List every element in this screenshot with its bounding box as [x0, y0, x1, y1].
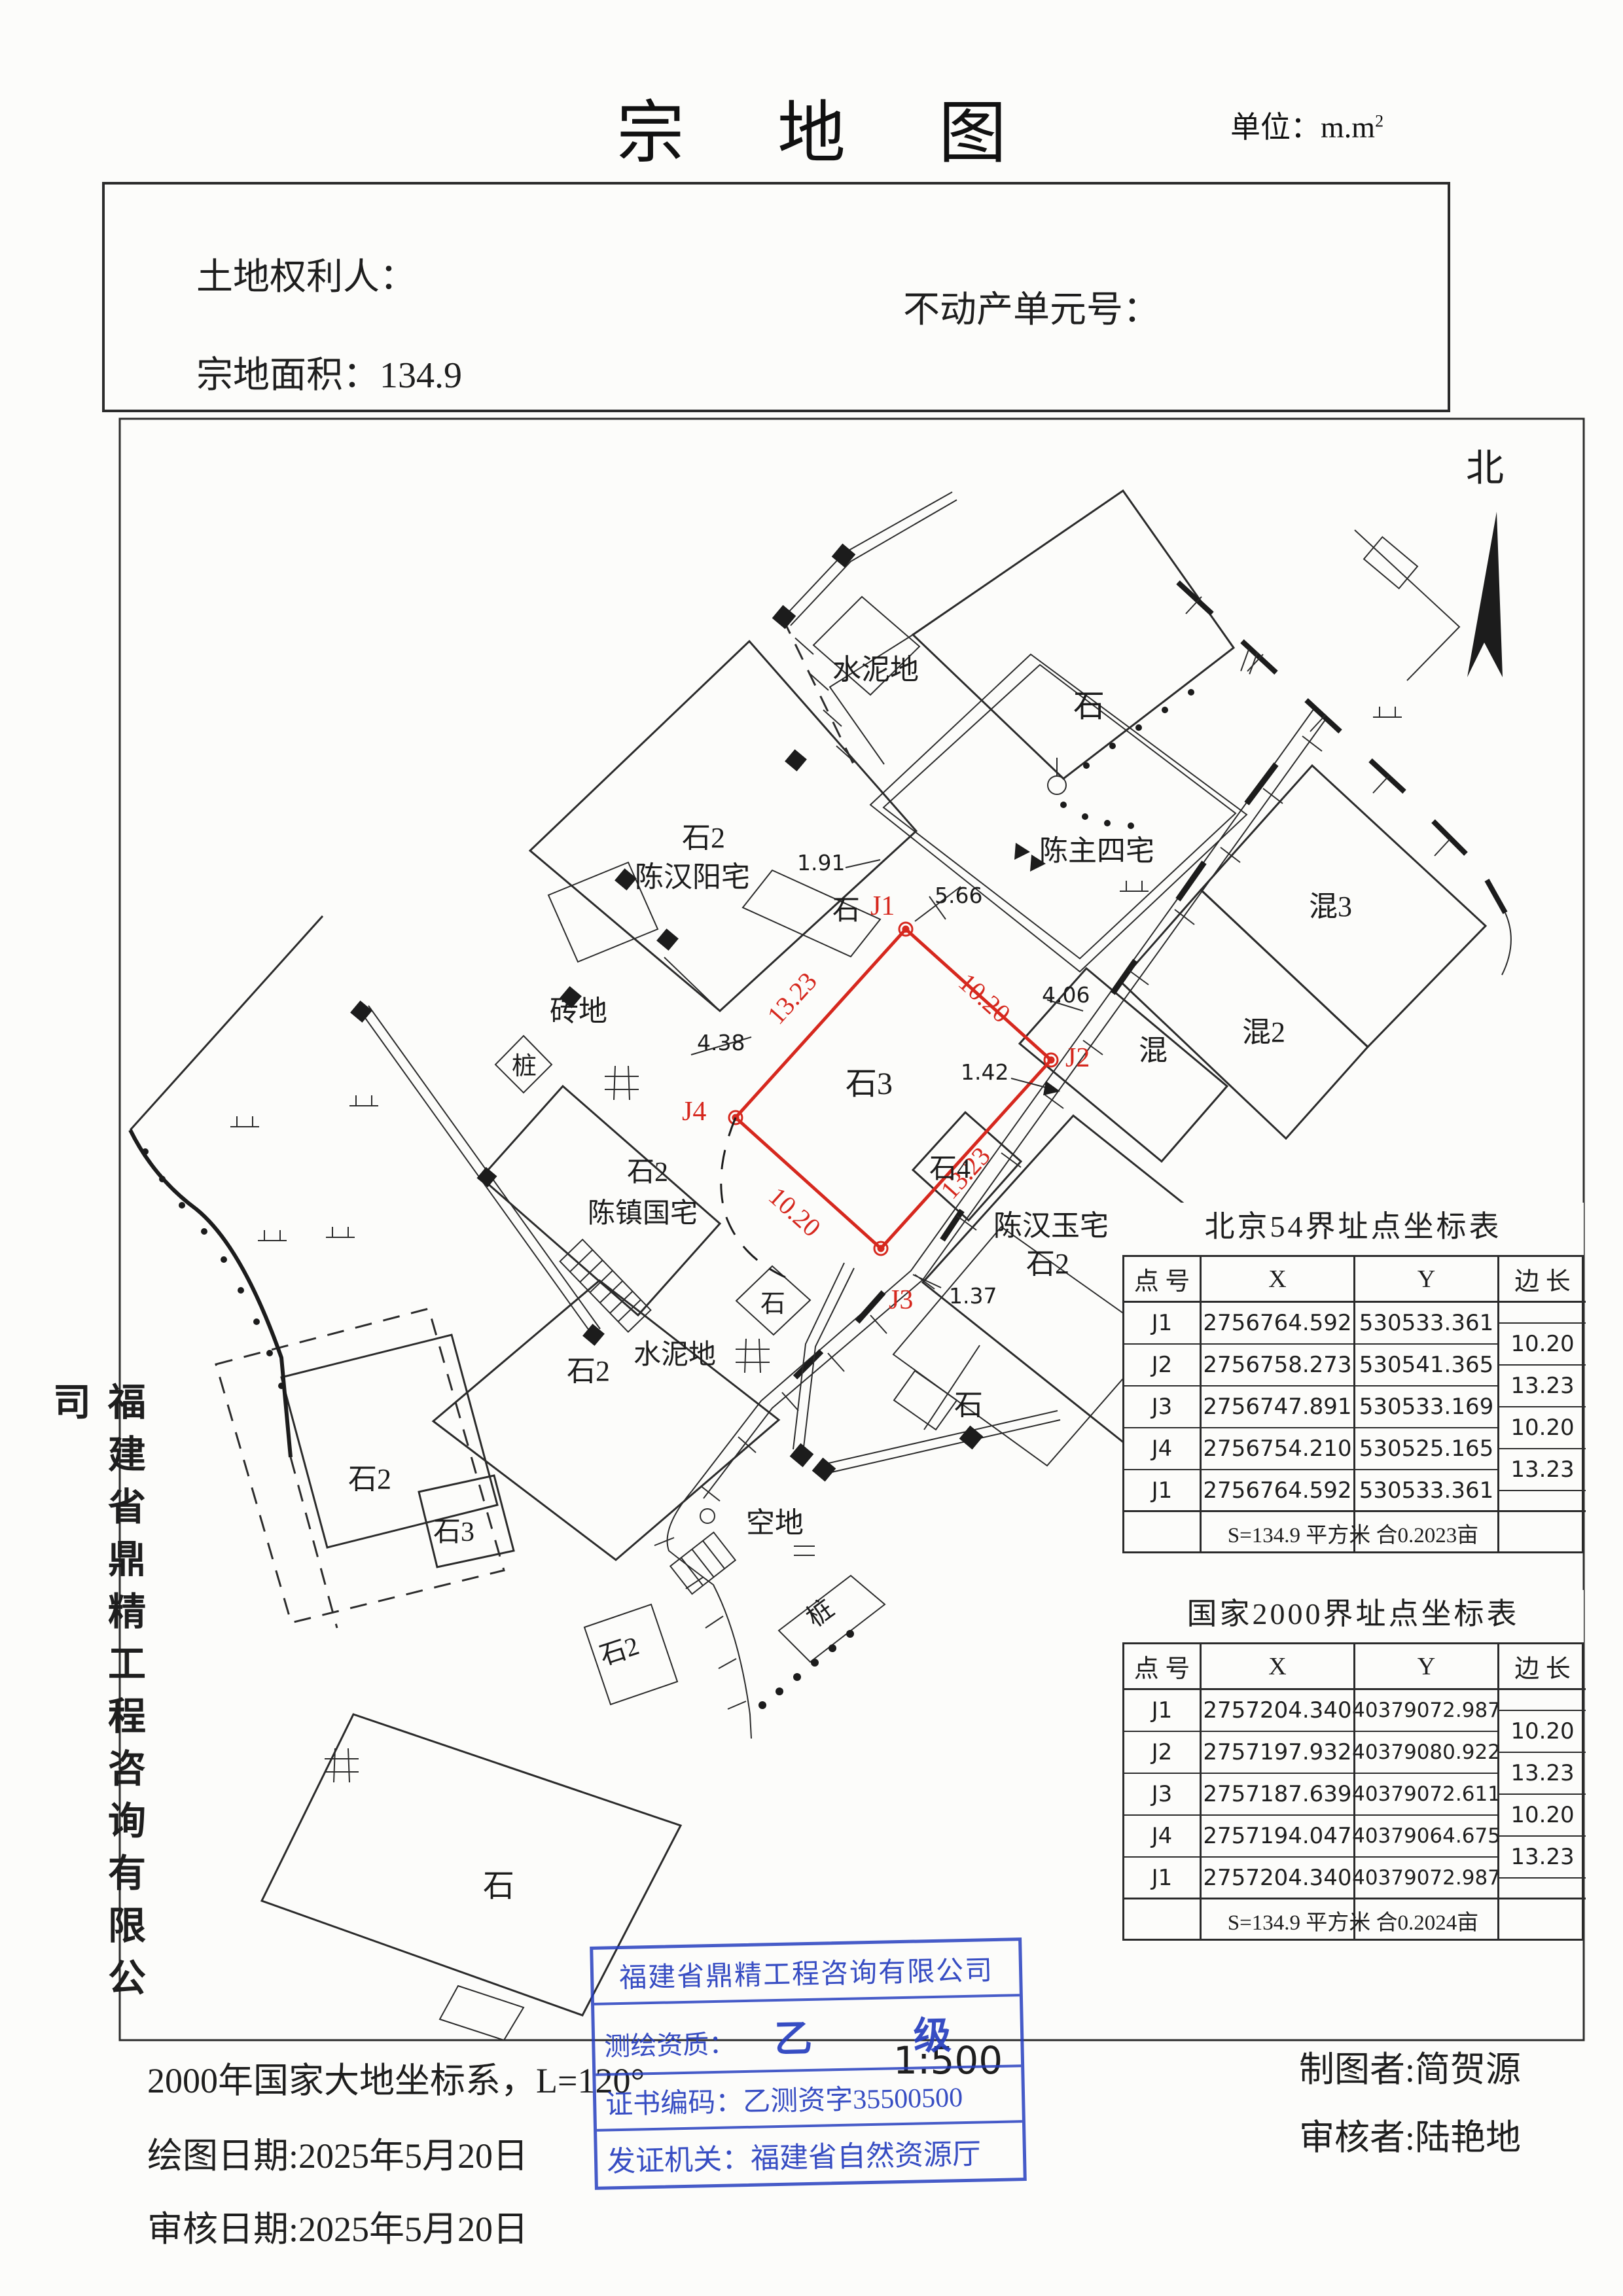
label-4-38: 4.38 [697, 1030, 745, 1055]
label-1-42: 1.42 [961, 1059, 1008, 1085]
label-zhuandi: 砖地 [550, 995, 607, 1027]
stamp-qualification: 测绘资质：乙 级 [594, 1996, 1021, 2076]
label-shi3-parcel: 石3 [846, 1067, 893, 1101]
col-header-x: X [1202, 1644, 1353, 1690]
table-title-cgcs2000: 国家2000界址点坐标表 [1122, 1590, 1584, 1633]
reviewer: 审核者:陆艳地 [1299, 2108, 1521, 2160]
label-shi2-a: 石2 [682, 822, 725, 854]
label-1-91: 1.91 [797, 850, 845, 875]
cell-x: 2757187.639 [1202, 1774, 1353, 1816]
label-4-06: 4.06 [1042, 982, 1090, 1008]
cell-edge: 10.20 [1499, 1407, 1586, 1449]
table-title-bj54: 北京54界址点坐标表 [1122, 1203, 1584, 1246]
coordinate-table-cgcs2000: 国家2000界址点坐标表 点 号 J1 J2 J3 J4 J1 X 275720… [1122, 1590, 1584, 1941]
label-shi-f: 石 [954, 1389, 983, 1421]
cell-point: J1 [1124, 1470, 1200, 1512]
label-shi-e: 石 [760, 1290, 785, 1318]
cell-edge: 13.23 [1499, 1449, 1586, 1491]
parcel-point-j3: J3 [889, 1285, 913, 1315]
cell-point: J3 [1124, 1386, 1200, 1428]
col-header-x: X [1202, 1257, 1353, 1303]
cell-x: 2757197.932 [1202, 1732, 1353, 1774]
label-shi2-b: 石2 [627, 1157, 668, 1188]
parcel-map-document: 宗 地 图 单位：m.m2 土地权利人： 不动产单元号： 宗地面积：134.9 … [0, 0, 1623, 2296]
stamp-qual-label: 测绘资质： [604, 2029, 736, 2061]
cell-x: 2756754.210 [1202, 1428, 1353, 1470]
label-hun: 混 [1139, 1034, 1168, 1067]
label-shi-strip: 石 [832, 896, 860, 926]
cell-point: J2 [1124, 1345, 1200, 1386]
cell-edge: 13.23 [1499, 1366, 1586, 1407]
drafter: 制图者:简贺源 [1299, 2040, 1521, 2092]
stamp-qual-value: 乙 级 [774, 2013, 998, 2060]
table-summary-bj54: S=134.9 平方米 合0.2023亩 [1124, 1514, 1582, 1551]
cell-x: 2757194.047 [1202, 1816, 1353, 1858]
cell-point: J4 [1124, 1428, 1200, 1470]
label-shi2-yu: 石2 [1026, 1248, 1069, 1280]
cell-y: 40379064.675 [1355, 1816, 1497, 1858]
label-shi2-e: 石2 [348, 1463, 391, 1495]
cell-y: 530533.361 [1355, 1470, 1497, 1512]
north-arrow-icon: 北 [1466, 447, 1504, 677]
cell-y: 530533.169 [1355, 1386, 1497, 1428]
cell-y: 40379072.987 [1355, 1858, 1497, 1899]
label-chenzhusizhai: 陈主四宅 [1039, 835, 1154, 867]
cell-point: J3 [1124, 1774, 1200, 1816]
cell-edge: 10.20 [1499, 1324, 1586, 1366]
north-label: 北 [1466, 447, 1504, 489]
col-header-y: Y [1355, 1257, 1497, 1303]
cell-y: 530525.165 [1355, 1428, 1497, 1470]
cell-edge: 10.20 [1499, 1795, 1586, 1837]
parcel-point-j2: J2 [1065, 1043, 1090, 1073]
cell-x: 2757204.340 [1202, 1690, 1353, 1732]
cell-x: 2756764.592 [1202, 1470, 1353, 1512]
label-shi-top: 石 [1073, 689, 1105, 724]
label-shi4: 石4 [929, 1154, 971, 1184]
stamp-issuer: 发证机关：福建省自然资源厅 [597, 2123, 1024, 2187]
label-shi3-b: 石3 [433, 1517, 474, 1547]
col-header-point: 点 号 [1124, 1644, 1200, 1690]
company-name-vertical: 福建省鼎精工程咨询有限公司 [41, 1382, 151, 2043]
col-header-edge: 边 长 [1499, 1257, 1586, 1303]
cell-edge: 10.20 [1499, 1711, 1586, 1753]
stamp-cert-code: 证书编码：乙测资字35500500 [596, 2067, 1022, 2132]
certification-stamp: 福建省鼎精工程咨询有限公司 测绘资质：乙 级 证书编码：乙测资字35500500… [590, 1937, 1027, 2190]
label-zhuang-a: 桩 [512, 1053, 537, 1080]
coordinate-table-bj54: 北京54界址点坐标表 点 号 J1 J2 J3 J4 J1 X 2756764.… [1122, 1203, 1584, 1553]
label-zhuang-b: 桩 [801, 1593, 840, 1633]
label-shuinidi-a: 水泥地 [832, 654, 919, 686]
label-shi2-c: 石2 [596, 1631, 643, 1670]
label-chenzhenguo: 陈镇国宅 [588, 1198, 698, 1229]
cell-y: 40379080.922 [1355, 1732, 1497, 1774]
cell-point: J1 [1124, 1303, 1200, 1345]
label-shi2-d: 石2 [567, 1355, 610, 1387]
cell-x: 2756758.273 [1202, 1345, 1353, 1386]
label-shi-d: 石 [483, 1869, 514, 1903]
label-kongdi: 空地 [746, 1507, 804, 1539]
label-shuinidi-b: 水泥地 [633, 1340, 716, 1370]
col-header-edge: 边 长 [1499, 1644, 1586, 1690]
cell-x: 2757204.340 [1202, 1858, 1353, 1899]
label-5-66: 5.66 [935, 883, 982, 908]
label-hun3: 混3 [1309, 891, 1352, 923]
cell-y: 530541.365 [1355, 1345, 1497, 1386]
cell-point: J4 [1124, 1816, 1200, 1858]
review-date: 审核日期:2025年5月20日 [147, 2200, 528, 2252]
label-chenhanyang: 陈汉阳宅 [635, 861, 750, 893]
cell-y: 40379072.611 [1355, 1774, 1497, 1816]
edge-length-j4j1: 13.23 [761, 966, 823, 1030]
table-summary-cgcs2000: S=134.9 平方米 合0.2024亩 [1124, 1901, 1582, 1939]
col-header-point: 点 号 [1124, 1257, 1200, 1303]
coordinate-system-note: 2000年国家大地坐标系，L=120° [147, 2051, 645, 2103]
cell-point: J2 [1124, 1732, 1200, 1774]
col-header-y: Y [1355, 1644, 1497, 1690]
parcel-point-j4: J4 [682, 1097, 706, 1127]
cell-x: 2756747.891 [1202, 1386, 1353, 1428]
cell-x: 2756764.592 [1202, 1303, 1353, 1345]
roads-and-walls [130, 530, 1511, 1739]
cell-y: 40379072.987 [1355, 1690, 1497, 1732]
label-hun2: 混2 [1242, 1016, 1285, 1048]
parcel-point-j1: J1 [870, 891, 895, 921]
cell-point: J1 [1124, 1858, 1200, 1899]
cell-edge: 13.23 [1499, 1753, 1586, 1795]
cell-y: 530533.361 [1355, 1303, 1497, 1345]
draw-date: 绘图日期:2025年5月20日 [147, 2127, 528, 2178]
cell-point: J1 [1124, 1690, 1200, 1732]
cell-edge: 13.23 [1499, 1837, 1586, 1879]
label-1-37: 1.37 [949, 1283, 997, 1309]
stamp-company: 福建省鼎精工程咨询有限公司 [593, 1941, 1020, 2005]
label-chenhanyu: 陈汉玉宅 [993, 1210, 1109, 1242]
